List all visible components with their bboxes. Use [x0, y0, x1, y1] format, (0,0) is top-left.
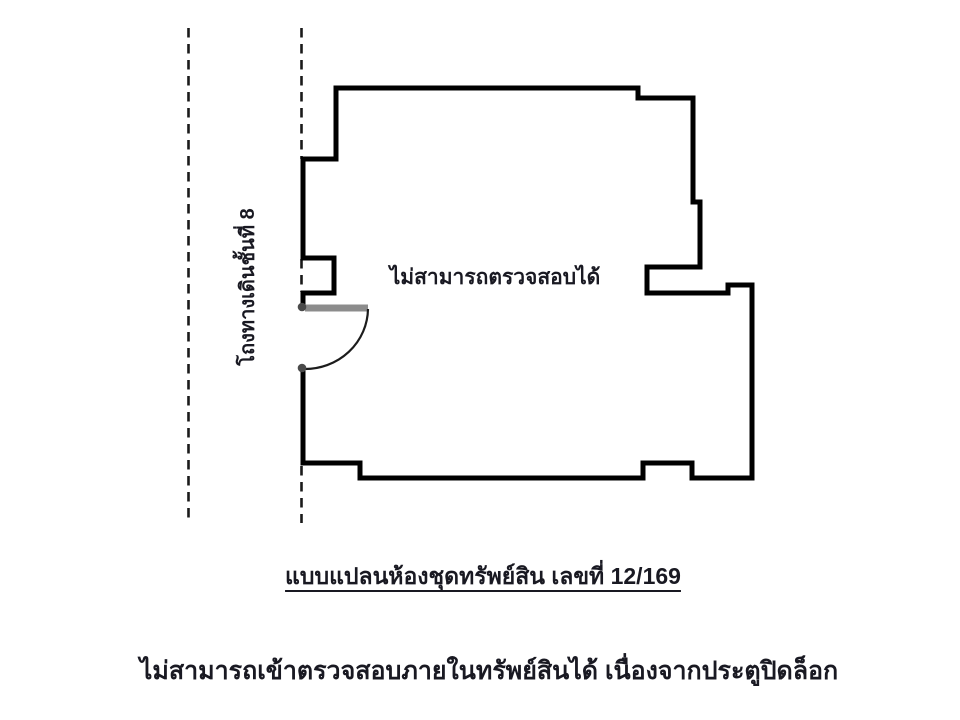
floor-plan-drawing — [0, 0, 960, 720]
corridor-label: โถงทางเดินชั้นที่ 8 — [233, 162, 263, 412]
door-hinge-dot-bottom — [298, 364, 307, 373]
inspection-footnote: ไม่สามารถเข้าตรวจสอบภายในทรัพย์สินได้ เน… — [10, 651, 960, 691]
floor-plan-page: โถงทางเดินชั้นที่ 8 ไม่สามารถตรวจสอบได้ … — [0, 0, 960, 720]
room-status-label: ไม่สามารถตรวจสอบได้ — [350, 261, 640, 294]
door-swing-arc — [304, 309, 368, 369]
plan-caption: แบบแปลนห้องชุดทรัพย์สิน เลขที่ 12/169 — [153, 559, 813, 595]
door-hinge-dot-top — [298, 303, 307, 312]
